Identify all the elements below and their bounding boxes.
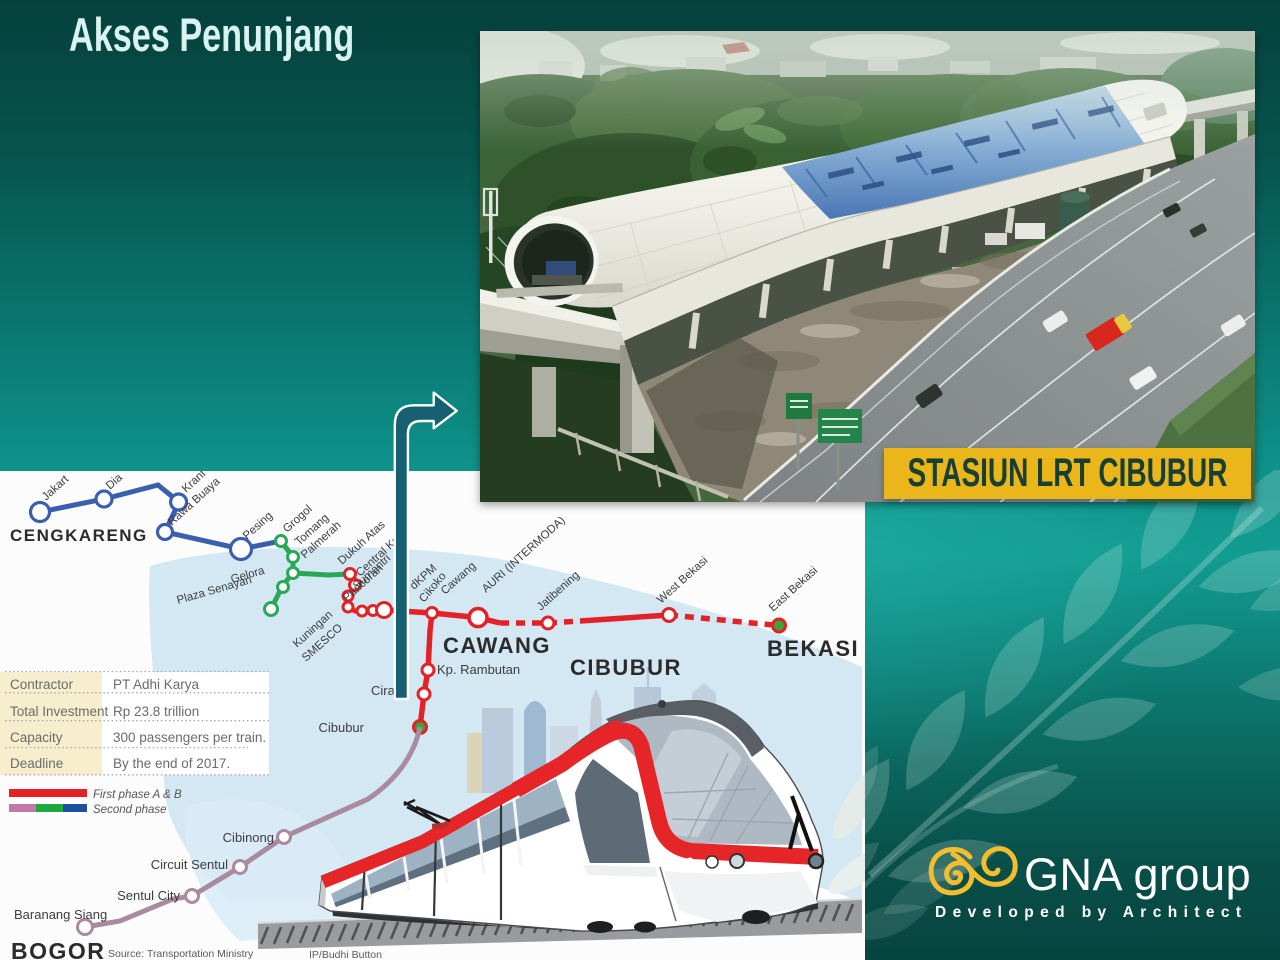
svg-text:CENGKARENG: CENGKARENG [10,526,148,545]
svg-text:Cibinong: Cibinong [223,830,274,845]
svg-text:Cibubur: Cibubur [318,720,364,735]
svg-text:Developed by Architect: Developed by Architect [935,904,1248,921]
svg-text:Circuit Sentul: Circuit Sentul [151,857,228,872]
svg-text:BOGOR: BOGOR [11,938,105,960]
svg-text:Capacity: Capacity [10,730,63,745]
svg-text:Deadline: Deadline [10,756,63,771]
svg-text:CIBUBUR: CIBUBUR [570,655,682,680]
svg-text:By the end of 2017.: By the end of 2017. [113,756,230,771]
svg-text:Total Investment: Total Investment [10,704,109,719]
svg-text:Source: Transportation Ministr: Source: Transportation Ministry [108,948,254,960]
svg-text:Baranang Siang: Baranang Siang [14,907,107,922]
svg-text:Rp 23.8 trillion: Rp 23.8 trillion [113,704,199,719]
svg-text:300 passengers per train.: 300 passengers per train. [113,730,266,745]
svg-text:First phase A & B: First phase A & B [93,789,182,801]
svg-text:BEKASI: BEKASI [767,636,859,661]
svg-text:PT Adhi Karya: PT Adhi Karya [113,677,200,692]
svg-text:Second phase: Second phase [93,804,167,816]
svg-text:GNA group: GNA group [1024,849,1251,900]
svg-text:Sentul City: Sentul City [117,888,180,903]
svg-text:Contractor: Contractor [10,677,74,692]
svg-text:IP/Budhi Button: IP/Budhi Button [309,949,382,960]
